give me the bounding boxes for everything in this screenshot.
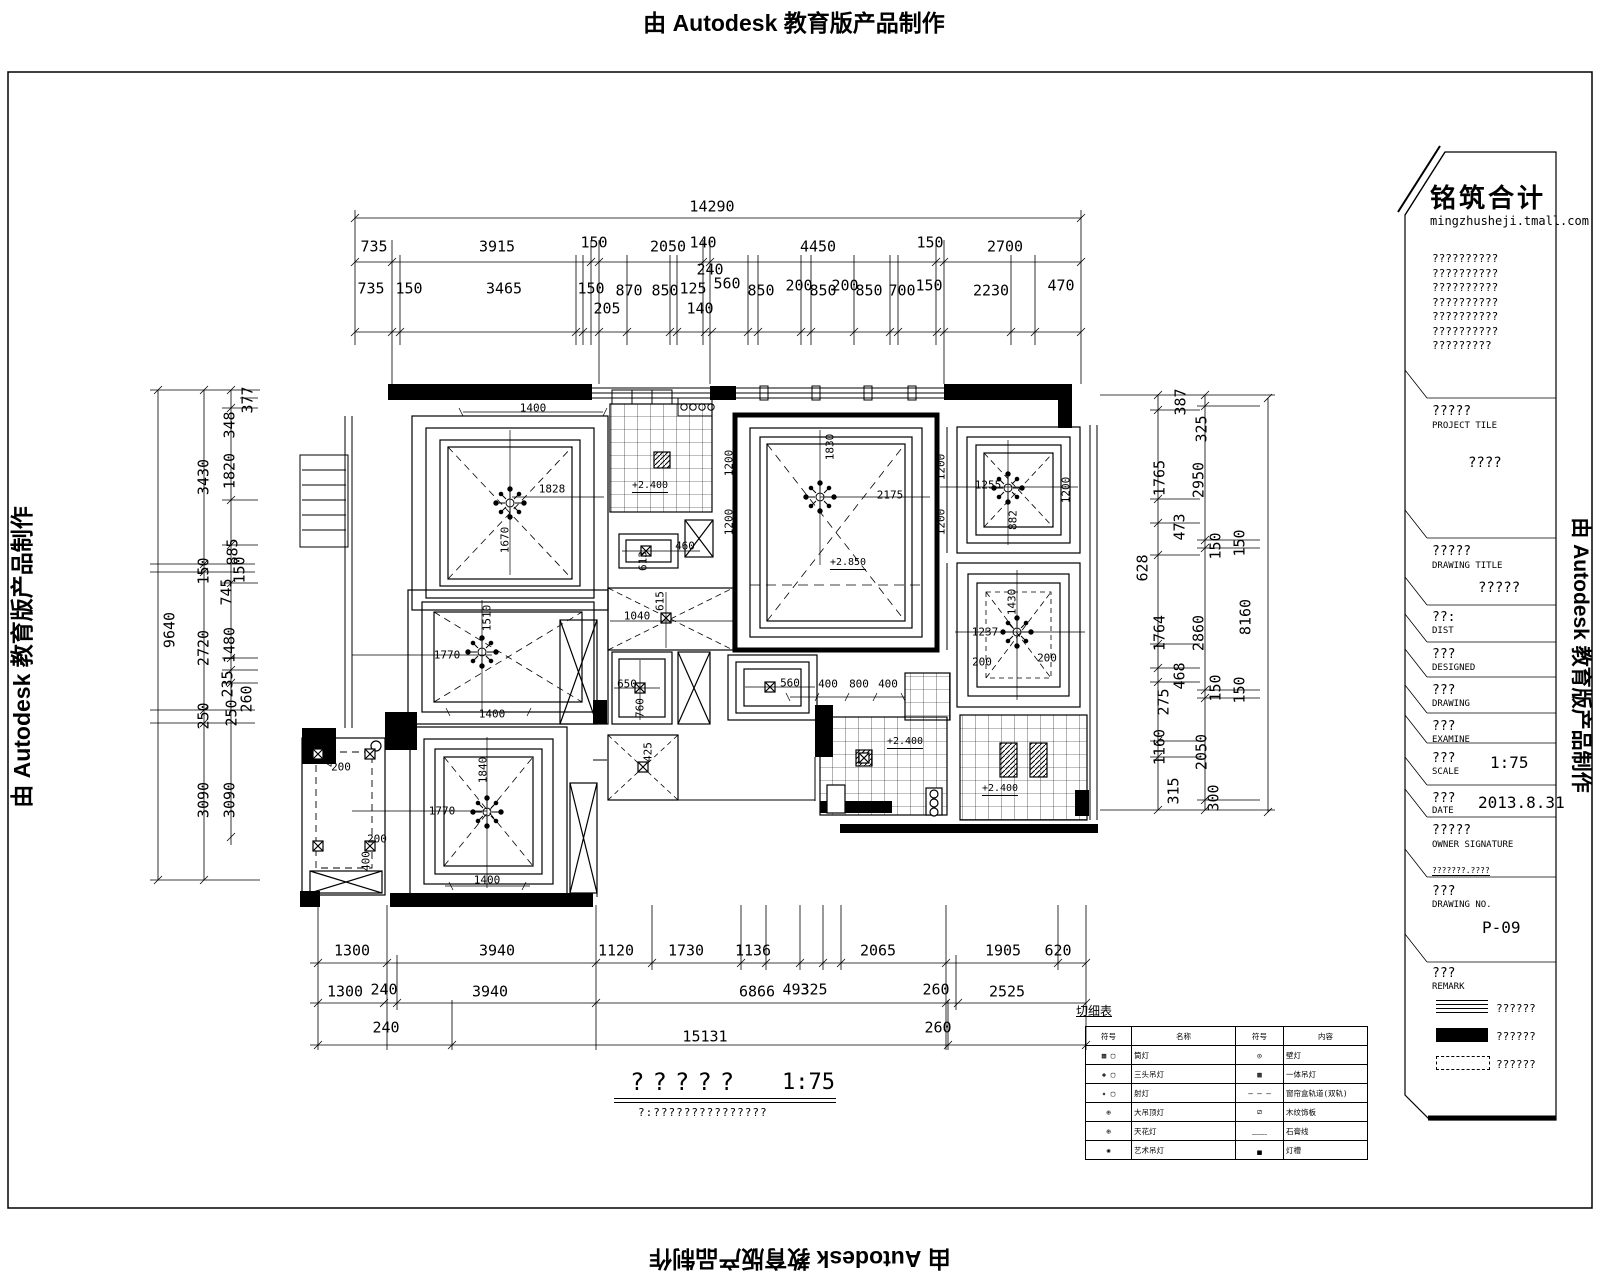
date-value: 2013.8.31 [1478,793,1565,812]
dim-label: 760 [635,698,646,718]
dim-label: 2700 [987,240,1023,255]
dim-label: 615 [655,591,666,611]
dim-label: 2050 [650,240,686,255]
remark-sublabel: REMARK [1432,982,1465,992]
drawing-title-value: ????? [1478,580,1520,596]
dim-label: 150 [915,279,942,294]
dim-label: 1770 [429,806,456,817]
legend-name-cell: 灯槽 [1284,1141,1368,1160]
note-line: ?????????? [1432,325,1498,340]
dim-label: 1764 [1153,615,1168,651]
legend-item-label: ?????? [1496,1002,1536,1015]
caption-underline [614,1098,836,1099]
note-line: ?????????? [1432,310,1498,325]
dim-label: 1160 [1153,729,1168,765]
dim-label: 1770 [434,650,461,661]
dim-label: 275 [1157,688,1172,715]
dim-label: 613 [638,551,649,571]
cad-sheet: 由 Autodesk 教育版产品制作 由 Autodesk 教育版产品制作 由 … [0,0,1600,1280]
dim-label: 1200 [724,450,735,477]
dim-label: 150 [233,556,248,583]
dim-label: 2860 [1192,615,1207,651]
project-title-value: ???? [1468,455,1502,471]
project-title-sublabel: PROJECT TILE [1432,421,1497,431]
legend-symbol-icon: ﹏﹏ [1236,1122,1284,1141]
dim-label: 15131 [682,1030,727,1045]
drawing-label: ??? [1432,683,1455,698]
dim-label: 1765 [1153,460,1168,496]
legend-table: 符号名称符号内容 ▦ ▢筒灯◎壁灯◈ ▢三头吊灯▩一体吊灯✦ ▢射灯— — —窗… [1085,1026,1368,1160]
dim-label: 473 [1173,513,1188,540]
legend-name-cell: 大吊顶灯 [1132,1103,1236,1122]
dim-label: 260 [924,1021,951,1036]
drawing-no-label: ??? [1432,884,1455,899]
dim-label: 150 [395,282,422,297]
dim-label: 300 [1207,784,1222,811]
legend-symbol-icon: ▦ ▢ [1086,1046,1132,1065]
legend-symbol-icon: ✦ ▢ [1086,1084,1132,1103]
legend-symbol-icon: ▩ [1236,1065,1284,1084]
note-line: ?????????? [1432,281,1498,296]
legend-table-row: ✺艺术吊灯▄灯槽 [1086,1141,1368,1160]
dim-label: 150 [1209,674,1224,701]
caption-underline [614,1102,836,1103]
dim-label: 628 [1136,554,1151,581]
dim-label: 1255 [975,480,1002,491]
dim-label: 200 [367,834,387,845]
dim-label: 1237 [972,627,999,638]
dim-label: 150 [577,282,604,297]
dim-label: 387 [1174,388,1189,415]
dim-label: 400 [361,851,372,871]
legend-name-cell: 射灯 [1132,1084,1236,1103]
dim-label: 800 [849,679,869,690]
legend-name-cell: 天花灯 [1132,1122,1236,1141]
dim-label: 560 [780,678,800,689]
dim-label: 4450 [800,240,836,255]
designed-sublabel: DESIGNED [1432,663,1475,673]
drawing-sublabel: DRAWING [1432,699,1470,709]
drawing-no-value: P-09 [1482,918,1521,937]
dim-label: 1830 [825,434,836,461]
drawing-title-label: ????? [1432,544,1471,559]
drawing-caption: ????? [630,1068,742,1096]
dim-label: 3940 [479,944,515,959]
dim-label: 240 [696,263,723,278]
dimension-chains [150,210,1275,1050]
note-line: ????????? [1432,339,1498,354]
dim-label: 425 [643,742,654,762]
dim-label: 1905 [985,944,1021,959]
dist-sublabel: DIST [1432,626,1454,636]
dim-label: 1136 [735,944,771,959]
dim-label: 2065 [860,944,896,959]
dim-label: 460 [675,541,695,552]
dim-label: 6866 [739,985,775,1000]
legend-table-title: 切细表 [1076,1002,1112,1019]
dim-label: 1430 [1007,589,1018,616]
elevation-label: +2.400 [982,784,1018,796]
owner-signature-sublabel: OWNER SIGNATURE [1432,840,1513,850]
note-line: ?????????? [1432,267,1498,282]
dim-label: 882 [1008,510,1019,530]
project-title-label: ????? [1432,404,1471,419]
dim-label: 650 [617,679,637,690]
solid-legend-icon [1436,1028,1488,1042]
dim-label: 2050 [1195,734,1210,770]
dim-label: 140 [689,236,716,251]
examine-sublabel: EXAMINE [1432,735,1470,745]
dim-label: 260 [922,983,949,998]
legend-table-header: 内容 [1284,1027,1368,1046]
dim-label: 8160 [1239,599,1254,635]
dim-label: 325 [800,983,827,998]
dim-label: 150 [1209,532,1224,559]
legend-symbol-icon: ⊕ [1086,1122,1132,1141]
dim-label: 1200 [724,509,735,536]
legend-symbol-icon: ▄ [1236,1141,1284,1160]
dim-label: 260 [240,685,255,712]
dist-label: ??: [1432,610,1455,625]
dim-label: 348 [223,411,238,438]
dim-label: 1300 [334,944,370,959]
legend-item-label: ?????? [1496,1058,1536,1071]
dim-label: 1200 [1061,477,1072,504]
legend-table-header: 符号 [1086,1027,1132,1046]
legend-table-row: ✦ ▢射灯— — —窗帘盒轨道(双轨) [1086,1084,1368,1103]
downlight-icon [859,753,869,763]
drawing-caption-note: ?:??????????????? [638,1106,768,1119]
legend-symbol-icon: ◈ ▢ [1086,1065,1132,1084]
scale-sublabel: SCALE [1432,767,1459,777]
dim-label: 2525 [989,985,1025,1000]
note-line: ?????????? [1432,296,1498,311]
dim-label: 468 [1173,662,1188,689]
legend-table-row: ⊕天花灯﹏﹏石膏线 [1086,1122,1368,1141]
dim-label: 1200 [936,454,947,481]
drawing-no-sublabel: DRAWING NO. [1432,900,1492,910]
dim-label: 3430 [197,459,212,495]
legend-name-cell: 壁灯 [1284,1046,1368,1065]
dim-label: 240 [370,983,397,998]
dim-label: 735 [360,240,387,255]
dim-label: 250 [225,699,240,726]
legend-name-cell: 三头吊灯 [1132,1065,1236,1084]
drawing-title-sublabel: DRAWING TITLE [1432,561,1502,571]
dim-label: 1400 [520,403,547,414]
date-label: ??? [1432,791,1455,806]
legend-symbol-icon: ✺ [1086,1141,1132,1160]
dim-label: 200 [331,762,351,773]
dim-label: 1040 [624,611,651,622]
legend-table-row: ⊕大吊顶灯⧄木纹饰板 [1086,1103,1368,1122]
dim-label: 150 [197,557,212,584]
dim-label: 850 [855,284,882,299]
legend-name-cell: 木纹饰板 [1284,1103,1368,1122]
note-line: ?????????? [1432,252,1498,267]
dim-label: 377 [241,386,256,413]
dim-label: 850 [747,284,774,299]
dim-label: 3090 [197,782,212,818]
dim-label: 1840 [478,757,489,784]
dim-label: 870 [615,284,642,299]
dim-label: 325 [1195,415,1210,442]
title-block-small-note: ???????.???? [1432,866,1490,876]
elevation-label: +2.400 [887,737,923,749]
dim-label: 14290 [689,200,734,215]
dim-label: 1670 [500,527,511,554]
dim-label: 1480 [223,627,238,663]
scale-value: 1:75 [1490,753,1529,772]
dim-label: 400 [818,679,838,690]
legend-table-header: 名称 [1132,1027,1236,1046]
dim-label: 205 [593,302,620,317]
dim-label: 1510 [482,605,493,632]
drawing-caption-scale: 1:75 [782,1070,835,1095]
elevation-label: +2.400 [632,481,668,493]
downlight-icon [638,762,648,772]
legend-name-cell: 艺术吊灯 [1132,1141,1236,1160]
small-coffers [608,534,817,800]
dashed-legend-icon [1436,1056,1490,1070]
date-sublabel: DATE [1432,806,1454,816]
legend-symbol-icon: ⊕ [1086,1103,1132,1122]
dim-label: 560 [713,277,740,292]
title-block-notes: ????????????????????????????????????????… [1432,252,1498,354]
scale-label: ??? [1432,751,1455,766]
dim-label: 235 [221,670,236,697]
lines-legend-icon [1436,1000,1488,1014]
legend-table-row: ◈ ▢三头吊灯▩一体吊灯 [1086,1065,1368,1084]
dim-label: 3915 [479,240,515,255]
dim-label: 150 [580,236,607,251]
dim-label: 9640 [163,612,178,648]
dim-label: 2950 [1192,462,1207,498]
dim-label: 850 [651,284,678,299]
dim-label: 3465 [486,282,522,297]
dim-label: 2230 [973,284,1009,299]
dim-label: 3940 [472,985,508,1000]
dim-label: 470 [1047,279,1074,294]
designed-label: ??? [1432,647,1455,662]
dim-label: 240 [372,1021,399,1036]
dim-label: 200 [1037,653,1057,664]
legend-name-cell: 石膏线 [1284,1122,1368,1141]
dim-label: 735 [357,282,384,297]
dim-label: 315 [1167,777,1182,804]
legend-table-row: ▦ ▢筒灯◎壁灯 [1086,1046,1368,1065]
dim-label: 150 [1233,529,1248,556]
dim-label: 250 [197,702,212,729]
dim-label: 700 [888,284,915,299]
dim-label: 1300 [327,985,363,1000]
dim-label: 2720 [197,630,212,666]
dim-label: 1730 [668,944,704,959]
dim-label: 140 [686,302,713,317]
dim-label: 1828 [539,484,566,495]
dim-label: 200 [972,657,992,668]
dim-label: 1200 [936,509,947,536]
legend-name-cell: 一体吊灯 [1284,1065,1368,1084]
legend-name-cell: 窗帘盒轨道(双轨) [1284,1084,1368,1103]
dim-label: 150 [916,236,943,251]
company-site: mingzhusheji.tmall.com [1430,214,1589,228]
dim-label: 150 [1233,676,1248,703]
examine-label: ??? [1432,719,1455,734]
company-logo: 铭筑合计 [1430,178,1546,215]
dim-label: 1400 [479,709,506,720]
legend-item-label: ?????? [1496,1030,1536,1043]
dim-label: 1120 [598,944,634,959]
legend-symbol-icon: — — — [1236,1084,1284,1103]
owner-signature-label: ????? [1432,823,1471,838]
legend-table-header: 符号 [1236,1027,1284,1046]
elevation-label: +2.850 [830,558,866,570]
dim-label: 1400 [474,875,501,886]
dim-label: 2175 [877,490,904,501]
remark-label: ??? [1432,966,1455,981]
legend-symbol-icon: ◎ [1236,1046,1284,1065]
dim-label: 3090 [223,782,238,818]
dim-label: 400 [878,679,898,690]
dim-label: 1820 [223,453,238,489]
dim-label: 620 [1044,944,1071,959]
dim-label: 125 [679,282,706,297]
legend-symbol-icon: ⧄ [1236,1103,1284,1122]
legend-name-cell: 筒灯 [1132,1046,1236,1065]
